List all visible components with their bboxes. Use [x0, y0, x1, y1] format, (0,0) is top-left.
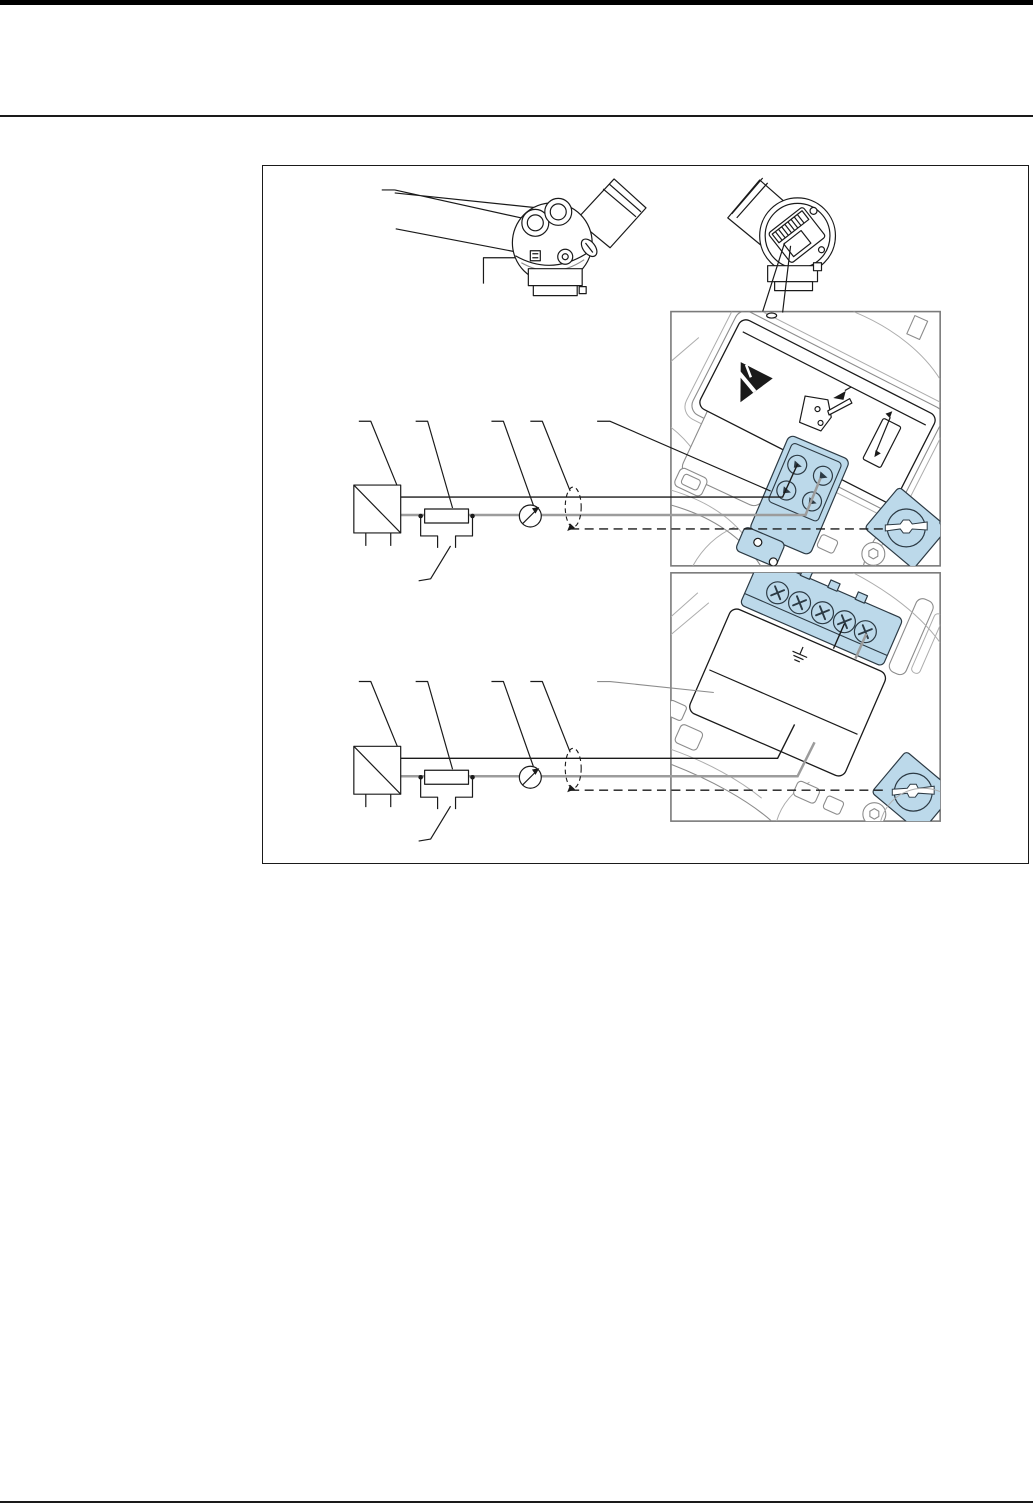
- flange-tab: [579, 287, 586, 294]
- flange-tab: [814, 263, 822, 271]
- cable-shield-icon: [565, 487, 581, 531]
- upper-terminal-compartment-view: [671, 299, 967, 615]
- header-rule: [0, 115, 1033, 117]
- supply-wiring-schematic-bottom: [354, 682, 581, 842]
- housing-flange: [528, 269, 582, 286]
- phillips-screw-icon: [854, 621, 876, 643]
- manual-page: [0, 0, 1033, 1506]
- cable-shield-icon: [565, 748, 581, 792]
- ammeter-icon: [519, 505, 541, 527]
- phillips-screw-icon: [767, 582, 789, 604]
- housing-flange-lower: [775, 282, 813, 291]
- transmitter-side-view: [382, 179, 646, 296]
- module-screw: [819, 247, 825, 253]
- lower-terminal-compartment-view: [664, 551, 967, 863]
- phillips-screw-icon: [812, 602, 834, 624]
- supply-wiring-schematic-top: [354, 421, 581, 581]
- torx-screw-icon: [862, 542, 885, 565]
- power-supply-icon: [354, 485, 401, 546]
- transmitter-terminal-view: [728, 178, 836, 291]
- wiring-diagram: [263, 166, 1028, 863]
- cable-gland-icon: [545, 198, 572, 225]
- locking-screw: [558, 249, 573, 264]
- module-screw: [810, 207, 817, 214]
- figure-frame: [262, 165, 1029, 864]
- phillips-screw-icon: [833, 611, 855, 633]
- power-supply-icon: [354, 746, 401, 807]
- footer-rule: [0, 1501, 1033, 1503]
- communication-resistor: [418, 770, 474, 809]
- torx-screw-icon: [863, 803, 886, 826]
- page-top-bar: [0, 0, 1033, 5]
- phillips-screw-icon: [789, 592, 811, 614]
- communication-resistor: [418, 509, 474, 548]
- ground-clamp: [530, 251, 540, 261]
- housing-flange-lower: [533, 286, 577, 296]
- ammeter-icon: [519, 766, 541, 788]
